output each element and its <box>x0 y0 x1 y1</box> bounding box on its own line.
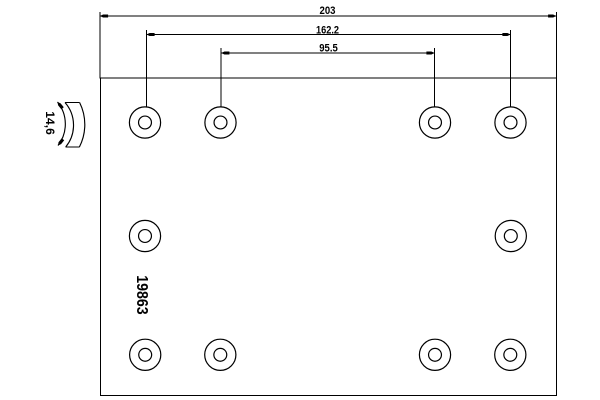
svg-text:14,6: 14,6 <box>43 111 57 135</box>
svg-text:95.5: 95.5 <box>319 43 338 55</box>
svg-text:19863: 19863 <box>133 275 150 315</box>
svg-text:162.2: 162.2 <box>316 24 339 36</box>
svg-text:203: 203 <box>320 5 336 17</box>
